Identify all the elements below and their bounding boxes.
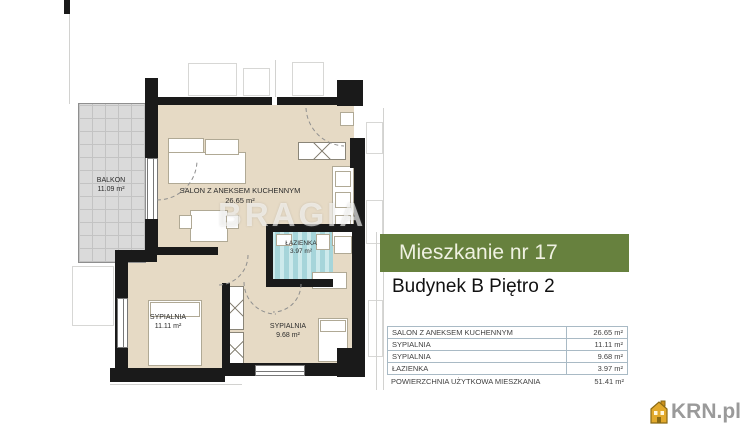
neighbor-outline <box>366 122 383 154</box>
wall-entrance <box>337 80 363 106</box>
neighbor-outline <box>275 60 276 97</box>
room-area: 9.68 m² <box>255 331 321 340</box>
row-value: 11.11 m² <box>567 339 627 350</box>
krn-logo: KRN.pl <box>649 399 740 425</box>
kitchen-sink <box>335 171 351 187</box>
wall <box>350 138 365 168</box>
wall <box>277 97 337 105</box>
row-label: SYPIALNIA <box>388 339 567 350</box>
coffee-table <box>205 139 239 155</box>
bed-pillow <box>320 320 346 332</box>
wall <box>155 97 272 105</box>
row-label: ŁAZIENKA <box>388 363 567 374</box>
krn-logo-text: KRN.pl <box>671 400 740 424</box>
building-floor-subtitle: Budynek B Piętro 2 <box>392 276 555 298</box>
table-row: SYPIALNIA 11.11 m² <box>388 338 627 350</box>
room-label-lazienka: ŁAZIENKA 3.97 m² <box>273 240 329 257</box>
room-area: 3.97 m² <box>273 248 329 256</box>
neighbor-outline <box>188 63 237 96</box>
neighbor-outline <box>376 232 377 390</box>
row-value: 3.97 m² <box>567 363 627 374</box>
wall <box>145 78 158 158</box>
balcony-door-window <box>147 158 158 221</box>
table-row: SYPIALNIA 9.68 m² <box>388 350 627 362</box>
table-row: SALON Z ANEKSEM KUCHENNYM 26.65 m² <box>388 327 627 338</box>
row-label: SALON Z ANEKSEM KUCHENNYM <box>388 327 567 338</box>
floor-plan-listing-image: BALKON 11.09 m² SALON Z ANEKSEM KUCHENNY… <box>0 0 740 438</box>
tenement-house-icon <box>649 399 669 425</box>
table-row: ŁAZIENKA 3.97 m² <box>388 362 627 374</box>
total-label: POWIERZCHNIA UŻYTKOWA MIESZKANIA <box>387 375 568 388</box>
washing-machine <box>334 236 352 254</box>
watermark: BRAGIA <box>218 196 366 234</box>
room-name: SALON Z ANEKSEM KUCHENNYM <box>170 186 310 196</box>
neighbor-outline <box>69 14 70 104</box>
window <box>255 365 305 376</box>
row-label: SYPIALNIA <box>388 351 567 362</box>
wall <box>155 247 218 255</box>
room-label-sypialnia-1: SYPIALNIA 11.11 m² <box>133 313 203 331</box>
sofa <box>168 152 246 184</box>
wall <box>352 224 365 352</box>
room-name: ŁAZIENKA <box>273 240 329 248</box>
room-area: 11.11 m² <box>133 322 203 331</box>
neighbor-outline <box>243 68 270 96</box>
areas-table: SALON Z ANEKSEM KUCHENNYM 26.65 m² SYPIA… <box>387 326 628 388</box>
wall <box>222 283 230 368</box>
room-label-balkon: BALKON 11.09 m² <box>78 176 144 194</box>
window <box>117 298 128 348</box>
neighbor-outline <box>110 384 242 385</box>
apartment-title: Mieszkanie nr 17 <box>380 234 629 272</box>
room-name: SYPIALNIA <box>255 322 321 331</box>
wall <box>266 230 273 283</box>
wall <box>64 0 70 14</box>
room-label-sypialnia-2: SYPIALNIA 9.68 m² <box>255 322 321 340</box>
chair <box>179 215 192 229</box>
total-value: 51.41 m² <box>568 375 628 388</box>
wall <box>266 279 333 287</box>
room-name: SYPIALNIA <box>133 313 203 322</box>
entry-fixture <box>340 112 354 126</box>
neighbor-outline <box>292 62 324 96</box>
room-area: 11.09 m² <box>78 185 144 194</box>
neighbor-outline <box>72 266 114 326</box>
areas-table-box: SALON Z ANEKSEM KUCHENNYM 26.65 m² SYPIA… <box>387 326 628 375</box>
table-total-row: POWIERZCHNIA UŻYTKOWA MIESZKANIA 51.41 m… <box>387 375 628 388</box>
wardrobe <box>298 142 346 160</box>
room-name: BALKON <box>78 176 144 185</box>
row-value: 26.65 m² <box>567 327 627 338</box>
row-value: 9.68 m² <box>567 351 627 362</box>
